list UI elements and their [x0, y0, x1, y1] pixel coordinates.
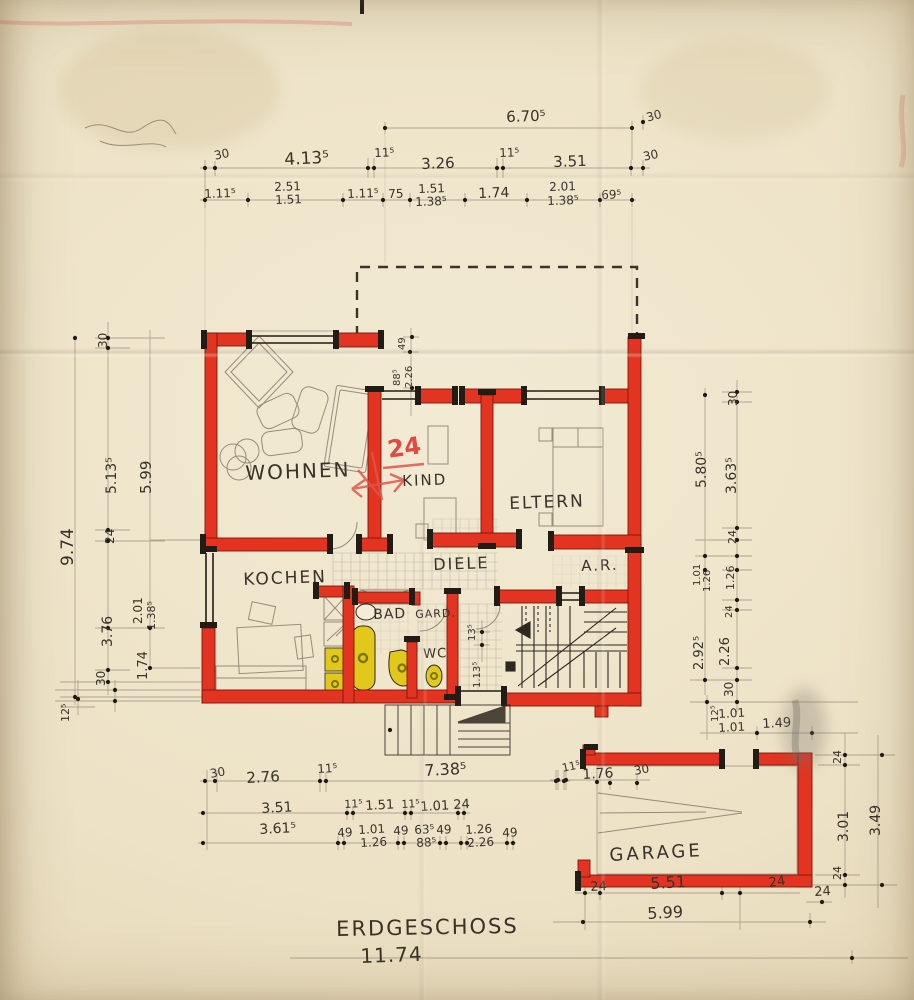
dim-label: 2.26	[467, 836, 494, 849]
dim-label: 24	[453, 798, 470, 812]
dim-label: 2.26	[405, 366, 415, 388]
dim-label: 3.51	[261, 800, 293, 816]
dim-label: 2.01	[549, 180, 576, 193]
dim-label: 30	[633, 762, 650, 776]
room-label-garage: GARAGE	[609, 842, 703, 865]
dim-label: 4.13⁵	[284, 150, 330, 169]
floor-plan-sheet: 6.70⁵30304.13⁵11⁵3.2611⁵3.51301.11⁵2.511…	[0, 0, 914, 1000]
dim-label: 1.26	[725, 566, 736, 591]
dim-label: 13⁵	[468, 624, 478, 641]
dim-label: 30	[97, 333, 109, 348]
dim-label: 3.63⁵	[725, 457, 739, 494]
dim-label: 9.74	[60, 528, 77, 566]
entry-steps	[385, 705, 510, 755]
dim-label: 5.99	[647, 904, 683, 922]
dim-label: 88⁵	[416, 836, 437, 849]
dim-label: 24	[104, 529, 116, 544]
dim-label: 2.76	[246, 769, 280, 786]
dim-label: 30	[213, 147, 230, 162]
room-label-gard: GARD.	[415, 608, 456, 620]
room-label-ar: A.R.	[581, 558, 619, 574]
room-label-kind: KIND	[402, 472, 448, 489]
dim-label: 2.01	[132, 597, 144, 624]
room-label-wohnen: WOHNEN	[245, 459, 351, 483]
staircase	[506, 606, 627, 688]
dim-label: 24	[590, 880, 607, 894]
room-label-wc: WC	[423, 647, 447, 661]
room-label-eltern: ELTERN	[509, 493, 585, 513]
plan-overall-width: 11.74	[360, 944, 423, 966]
dim-label: 24	[725, 605, 735, 618]
dim-label: 88⁵	[393, 369, 403, 386]
dim-label: 75	[388, 187, 404, 200]
dim-label: 5.80⁵	[695, 451, 709, 488]
dim-label: 5.13⁵	[105, 457, 119, 494]
dim-label: 3.76	[101, 616, 115, 647]
dim-label: 5.99	[139, 461, 154, 494]
dim-label: 1.26	[360, 836, 387, 849]
dim-label: 3.61⁵	[259, 821, 296, 837]
dim-label: 1.49	[762, 716, 792, 730]
dim-label: 49	[398, 337, 408, 350]
dim-label: 5.51	[650, 874, 686, 892]
dim-label: 1.11⁵	[347, 187, 379, 200]
dim-label: 24	[832, 866, 843, 880]
dim-label: 1.01	[420, 799, 450, 813]
dim-label: 3.01	[837, 811, 851, 842]
dim-label: 11⁵	[344, 798, 363, 810]
dim-label: 2.92⁵	[693, 636, 706, 670]
dim-label: 3.26	[421, 156, 455, 172]
dim-label: 30	[95, 671, 107, 686]
dim-label: 49	[502, 826, 518, 839]
dim-label: 1.26	[703, 570, 713, 592]
dim-top-overall-right: 30	[645, 108, 663, 124]
dim-label: 30	[209, 765, 226, 779]
dim-label: 11⁵	[499, 146, 520, 159]
dim-label: 2.51	[274, 180, 301, 193]
dim-label: 1.01	[718, 721, 745, 734]
dim-label: 49	[393, 824, 409, 837]
dim-label: 24	[727, 530, 738, 544]
room-label-diele: DIELE	[433, 555, 490, 573]
red-annotation-24: 24	[386, 433, 422, 461]
dim-label: 7.38⁵	[424, 761, 467, 779]
dim-label: 11⁵	[317, 762, 338, 775]
dim-label: 49	[337, 826, 353, 839]
dim-label: 1.38⁵	[415, 195, 447, 208]
dim-label: 30	[723, 682, 735, 697]
dim-label: 30	[727, 391, 739, 406]
dim-label: 49	[436, 823, 452, 836]
dim-label: 24	[768, 875, 786, 890]
dim-label: 3.49	[869, 805, 883, 836]
dim-top-overall: 6.70⁵	[506, 109, 546, 125]
dim-label: 24	[832, 750, 843, 764]
room-label-bad: BAD	[373, 607, 406, 622]
dim-label: 69⁵	[601, 188, 622, 201]
dim-label: 1.74	[478, 186, 510, 201]
dim-label: 1.76	[582, 766, 614, 782]
floor-plan-drawing	[0, 0, 914, 1000]
plan-title: ERDGESCHOSS	[336, 916, 519, 940]
dim-label: 12⁵	[60, 704, 71, 722]
dim-label: 1.01	[718, 707, 745, 720]
dim-label: 30	[642, 148, 659, 163]
dim-label: 11⁵	[401, 798, 420, 810]
dim-label: 63⁵	[414, 823, 435, 836]
dim-label: 11⁵	[561, 759, 581, 774]
dim-label: 11⁵	[374, 146, 395, 159]
dim-label: 1.51	[275, 193, 302, 206]
dim-label: 1.13⁵	[473, 662, 483, 688]
dim-label: 3.51	[553, 154, 587, 170]
room-label-kochen: KOCHEN	[243, 569, 327, 589]
dim-label: 2.26	[719, 637, 732, 666]
dim-label: 1.38⁵	[547, 194, 579, 207]
dim-label: 1.74	[137, 651, 150, 680]
terrace-dashed-outline	[357, 267, 637, 338]
dim-label: 24	[814, 885, 831, 899]
dim-label: 1.51	[418, 182, 445, 195]
dim-label: 1.51	[365, 798, 395, 812]
dim-label: 1.38⁵	[146, 601, 157, 630]
dim-label: 1.11⁵	[204, 187, 236, 200]
